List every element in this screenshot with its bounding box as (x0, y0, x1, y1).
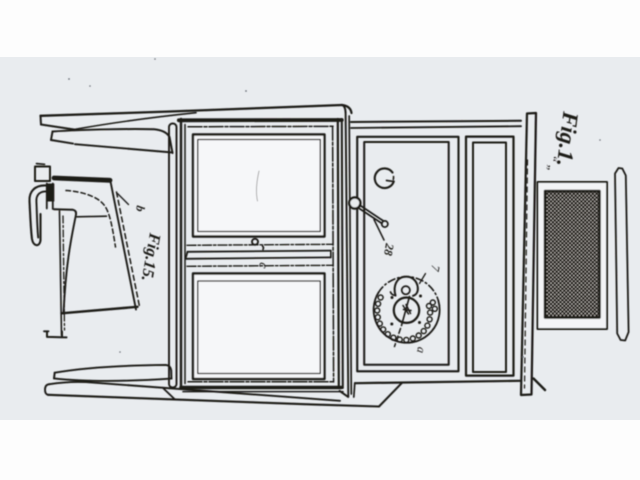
svg-text:28: 28 (381, 241, 397, 256)
